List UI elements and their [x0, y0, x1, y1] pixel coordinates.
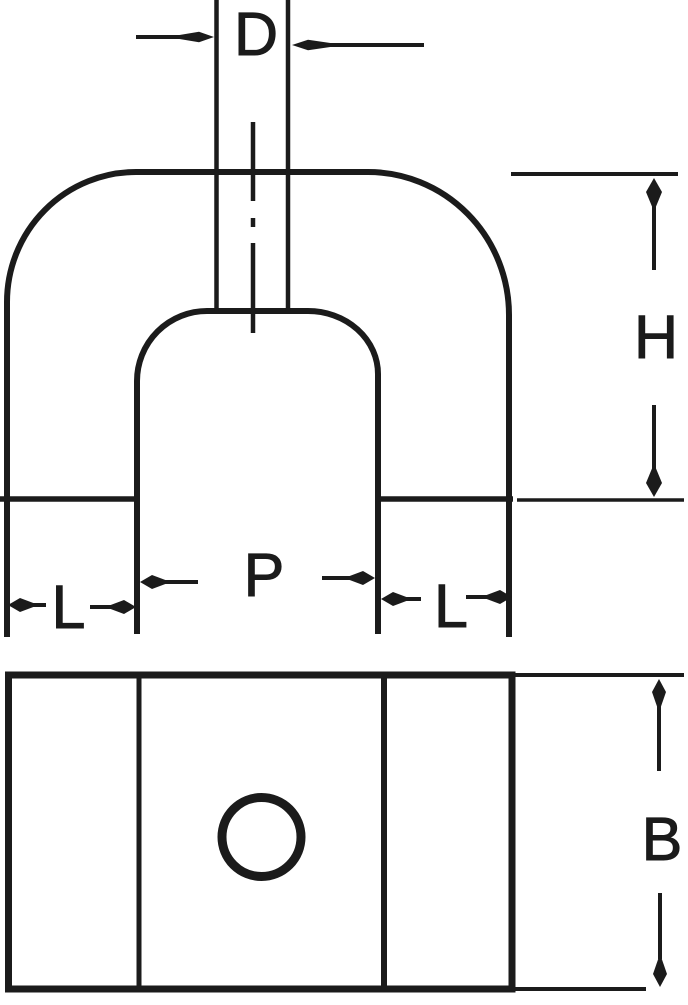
svg-text:H: H — [634, 303, 678, 371]
svg-text:D: D — [234, 0, 278, 68]
svg-text:L: L — [434, 572, 468, 640]
svg-text:L: L — [52, 573, 86, 641]
svg-text:B: B — [642, 805, 683, 873]
svg-text:P: P — [244, 541, 285, 609]
